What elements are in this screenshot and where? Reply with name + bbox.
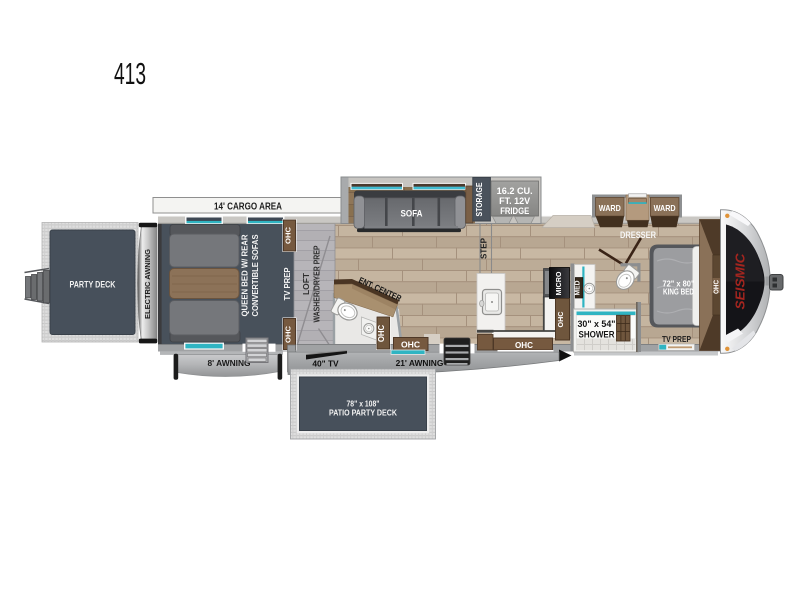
- svg-text:LOFT: LOFT: [302, 273, 311, 295]
- svg-text:DRESSER: DRESSER: [620, 229, 656, 240]
- svg-text:SHOWER: SHOWER: [579, 330, 615, 340]
- svg-text:MICRO: MICRO: [554, 271, 563, 295]
- svg-text:OHC: OHC: [556, 311, 565, 327]
- svg-text:OHC: OHC: [284, 227, 293, 244]
- svg-text:PATIO PARTY DECK: PATIO PARTY DECK: [329, 408, 397, 418]
- svg-text:WASHER/DRYER PREP: WASHER/DRYER PREP: [313, 245, 322, 323]
- svg-text:413: 413: [114, 56, 146, 91]
- svg-text:KING BED: KING BED: [663, 287, 694, 296]
- svg-text:FT. 12V: FT. 12V: [499, 196, 530, 206]
- svg-text:OHC: OHC: [284, 326, 293, 343]
- svg-text:PARTY DECK: PARTY DECK: [70, 280, 116, 290]
- svg-text:STORAGE: STORAGE: [475, 183, 484, 217]
- svg-text:TV PREP: TV PREP: [283, 267, 292, 301]
- svg-text:OHC: OHC: [377, 324, 386, 342]
- svg-text:TV PREP: TV PREP: [662, 334, 691, 344]
- svg-text:16.2 CU.: 16.2 CU.: [497, 186, 533, 196]
- svg-text:21' AWNING: 21' AWNING: [396, 358, 444, 368]
- svg-text:QUEEN BED W/ REAR: QUEEN BED W/ REAR: [241, 234, 250, 316]
- svg-text:WARD: WARD: [654, 204, 676, 213]
- svg-text:SOFA: SOFA: [401, 209, 424, 219]
- svg-text:STEP: STEP: [480, 237, 489, 259]
- svg-text:SEISMIC: SEISMIC: [733, 253, 748, 310]
- svg-text:8' AWNING: 8' AWNING: [207, 358, 250, 368]
- svg-text:OHC: OHC: [515, 340, 533, 350]
- svg-text:30" x 54": 30" x 54": [578, 319, 616, 329]
- svg-text:ELECTRIC AWNING: ELECTRIC AWNING: [143, 249, 152, 319]
- svg-text:14' CARGO AREA: 14' CARGO AREA: [214, 201, 283, 212]
- svg-text:MED: MED: [572, 281, 581, 296]
- svg-text:OHC: OHC: [711, 280, 720, 294]
- svg-text:40" TV: 40" TV: [312, 359, 339, 369]
- svg-text:OHC: OHC: [401, 340, 420, 350]
- svg-text:FRIDGE: FRIDGE: [500, 206, 529, 216]
- svg-text:WARD: WARD: [599, 204, 621, 213]
- svg-text:CONVERTIBLE SOFAS: CONVERTIBLE SOFAS: [251, 234, 260, 317]
